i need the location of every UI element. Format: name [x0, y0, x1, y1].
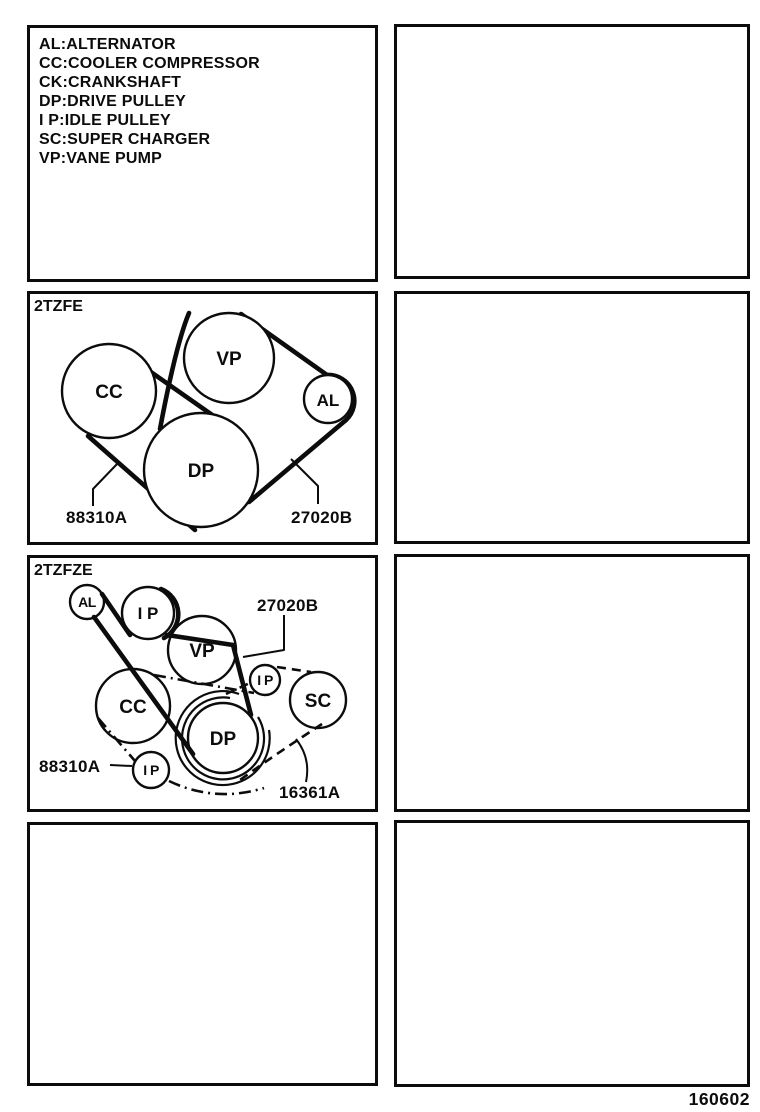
pulley-label-dp: DP: [210, 729, 237, 750]
page-code: 160602: [660, 1089, 750, 1110]
diagram-box-2tzfe: CC VP AL DP 88310A 27020B 2TZFE: [27, 291, 378, 545]
pulley-label-cc: CC: [119, 697, 147, 718]
pulley-label-vp: VP: [189, 641, 215, 662]
pulley-label-ip-right: I P: [257, 672, 273, 688]
engine-code-2tzfze: 2TZFZE: [34, 562, 93, 579]
legend-item-idle-pulley: I P:IDLE PULLEY: [39, 111, 369, 130]
legend-item-drive-pulley: DP:DRIVE PULLEY: [39, 92, 369, 111]
leader-27020b: [243, 615, 284, 657]
empty-cell-right-4: [394, 820, 750, 1087]
pulley-label-sc: SC: [305, 691, 332, 712]
pulley-label-cc: CC: [95, 382, 123, 403]
empty-cell-right-2: [394, 291, 750, 544]
empty-cell-right-3: [394, 554, 750, 812]
legend-item-vane-pump: VP:VANE PUMP: [39, 149, 369, 168]
leader-88310a: [93, 463, 118, 506]
pulley-label-vp: VP: [216, 349, 242, 370]
belt-diagram-2tzfe: CC VP AL DP 88310A 27020B 2TZFE: [30, 294, 375, 542]
part-number-16361a: 16361A: [279, 783, 340, 802]
empty-cell-bottom-left: [27, 822, 378, 1086]
pulley-label-al: AL: [78, 594, 97, 610]
part-number-88310a: 88310A: [66, 508, 127, 527]
legend-item-alternator: AL:ALTERNATOR: [39, 35, 369, 54]
belt-run-ipright-sc: [277, 667, 311, 672]
part-number-27020b: 27020B: [291, 508, 352, 527]
part-number-88310a: 88310A: [39, 757, 100, 776]
pulley-label-al: AL: [317, 391, 340, 410]
pulley-label-dp: DP: [188, 461, 215, 482]
belt-run-ipbottom-dp: [169, 781, 264, 794]
pulley-label-ip-bottom: I P: [143, 762, 159, 778]
legend-item-crankshaft: CK:CRANKSHAFT: [39, 73, 369, 92]
leader-16361a: [296, 739, 307, 782]
legend-box: AL:ALTERNATOR CC:COOLER COMPRESSOR CK:CR…: [27, 25, 378, 282]
empty-cell-right-1: [394, 24, 750, 279]
leader-88310a: [110, 765, 132, 766]
belt-run-vp-dp-cross: [160, 313, 189, 429]
legend-list: AL:ALTERNATOR CC:COOLER COMPRESSOR CK:CR…: [30, 28, 375, 168]
belt-run-al-dp: [249, 420, 346, 502]
pulley-label-ip-top: I P: [138, 604, 159, 623]
engine-code-2tzfe: 2TZFE: [34, 298, 83, 315]
part-number-27020b: 27020B: [257, 596, 318, 615]
legend-item-cooler-compressor: CC:COOLER COMPRESSOR: [39, 54, 369, 73]
belt-diagram-2tzfze: AL I P VP CC I P SC DP I P 27020B 88310A…: [30, 558, 375, 809]
legend-item-super-charger: SC:SUPER CHARGER: [39, 130, 369, 149]
diagram-box-2tzfze: AL I P VP CC I P SC DP I P 27020B 88310A…: [27, 555, 378, 812]
